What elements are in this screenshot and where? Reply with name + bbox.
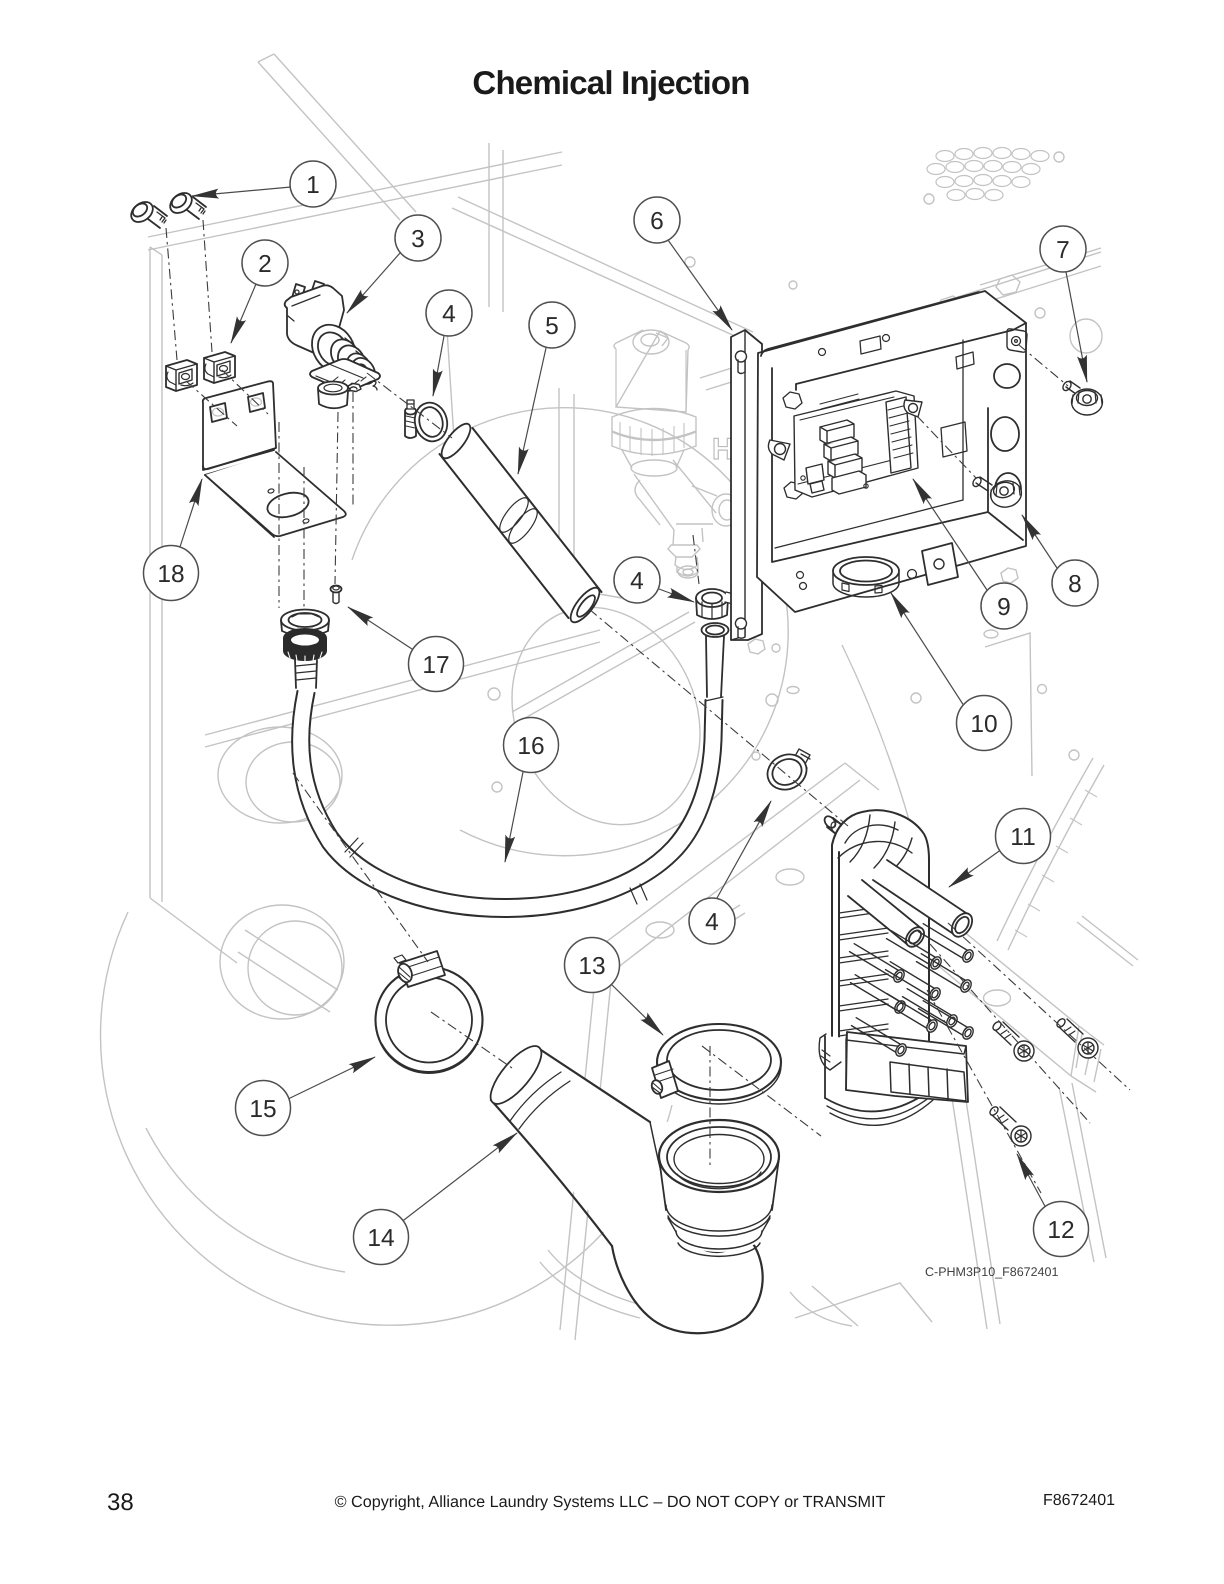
svg-text:11: 11 <box>1010 824 1035 851</box>
svg-text:6: 6 <box>650 208 664 235</box>
svg-text:10: 10 <box>970 711 997 738</box>
svg-text:15: 15 <box>249 1096 276 1123</box>
svg-text:4: 4 <box>630 568 644 595</box>
svg-text:© Copyright, Alliance Laundry: © Copyright, Alliance Laundry Systems LL… <box>335 1493 886 1511</box>
svg-text:14: 14 <box>367 1225 394 1252</box>
svg-text:17: 17 <box>422 652 449 679</box>
svg-text:5: 5 <box>545 313 559 340</box>
svg-text:Chemical Injection: Chemical Injection <box>472 64 749 101</box>
svg-text:16: 16 <box>517 733 544 760</box>
svg-text:9: 9 <box>997 594 1011 621</box>
svg-text:38: 38 <box>107 1489 134 1516</box>
svg-text:18: 18 <box>157 561 184 588</box>
svg-text:F8672401: F8672401 <box>1043 1492 1115 1509</box>
svg-text:4: 4 <box>442 301 456 328</box>
svg-text:3: 3 <box>411 226 425 253</box>
svg-text:7: 7 <box>1056 237 1070 264</box>
svg-text:4: 4 <box>705 909 719 936</box>
svg-text:C-PHM3P10_F8672401: C-PHM3P10_F8672401 <box>925 1265 1058 1279</box>
svg-text:8: 8 <box>1068 571 1082 598</box>
svg-text:12: 12 <box>1047 1217 1074 1244</box>
svg-text:2: 2 <box>258 251 272 278</box>
svg-text:13: 13 <box>578 953 605 980</box>
svg-text:1: 1 <box>306 172 320 199</box>
